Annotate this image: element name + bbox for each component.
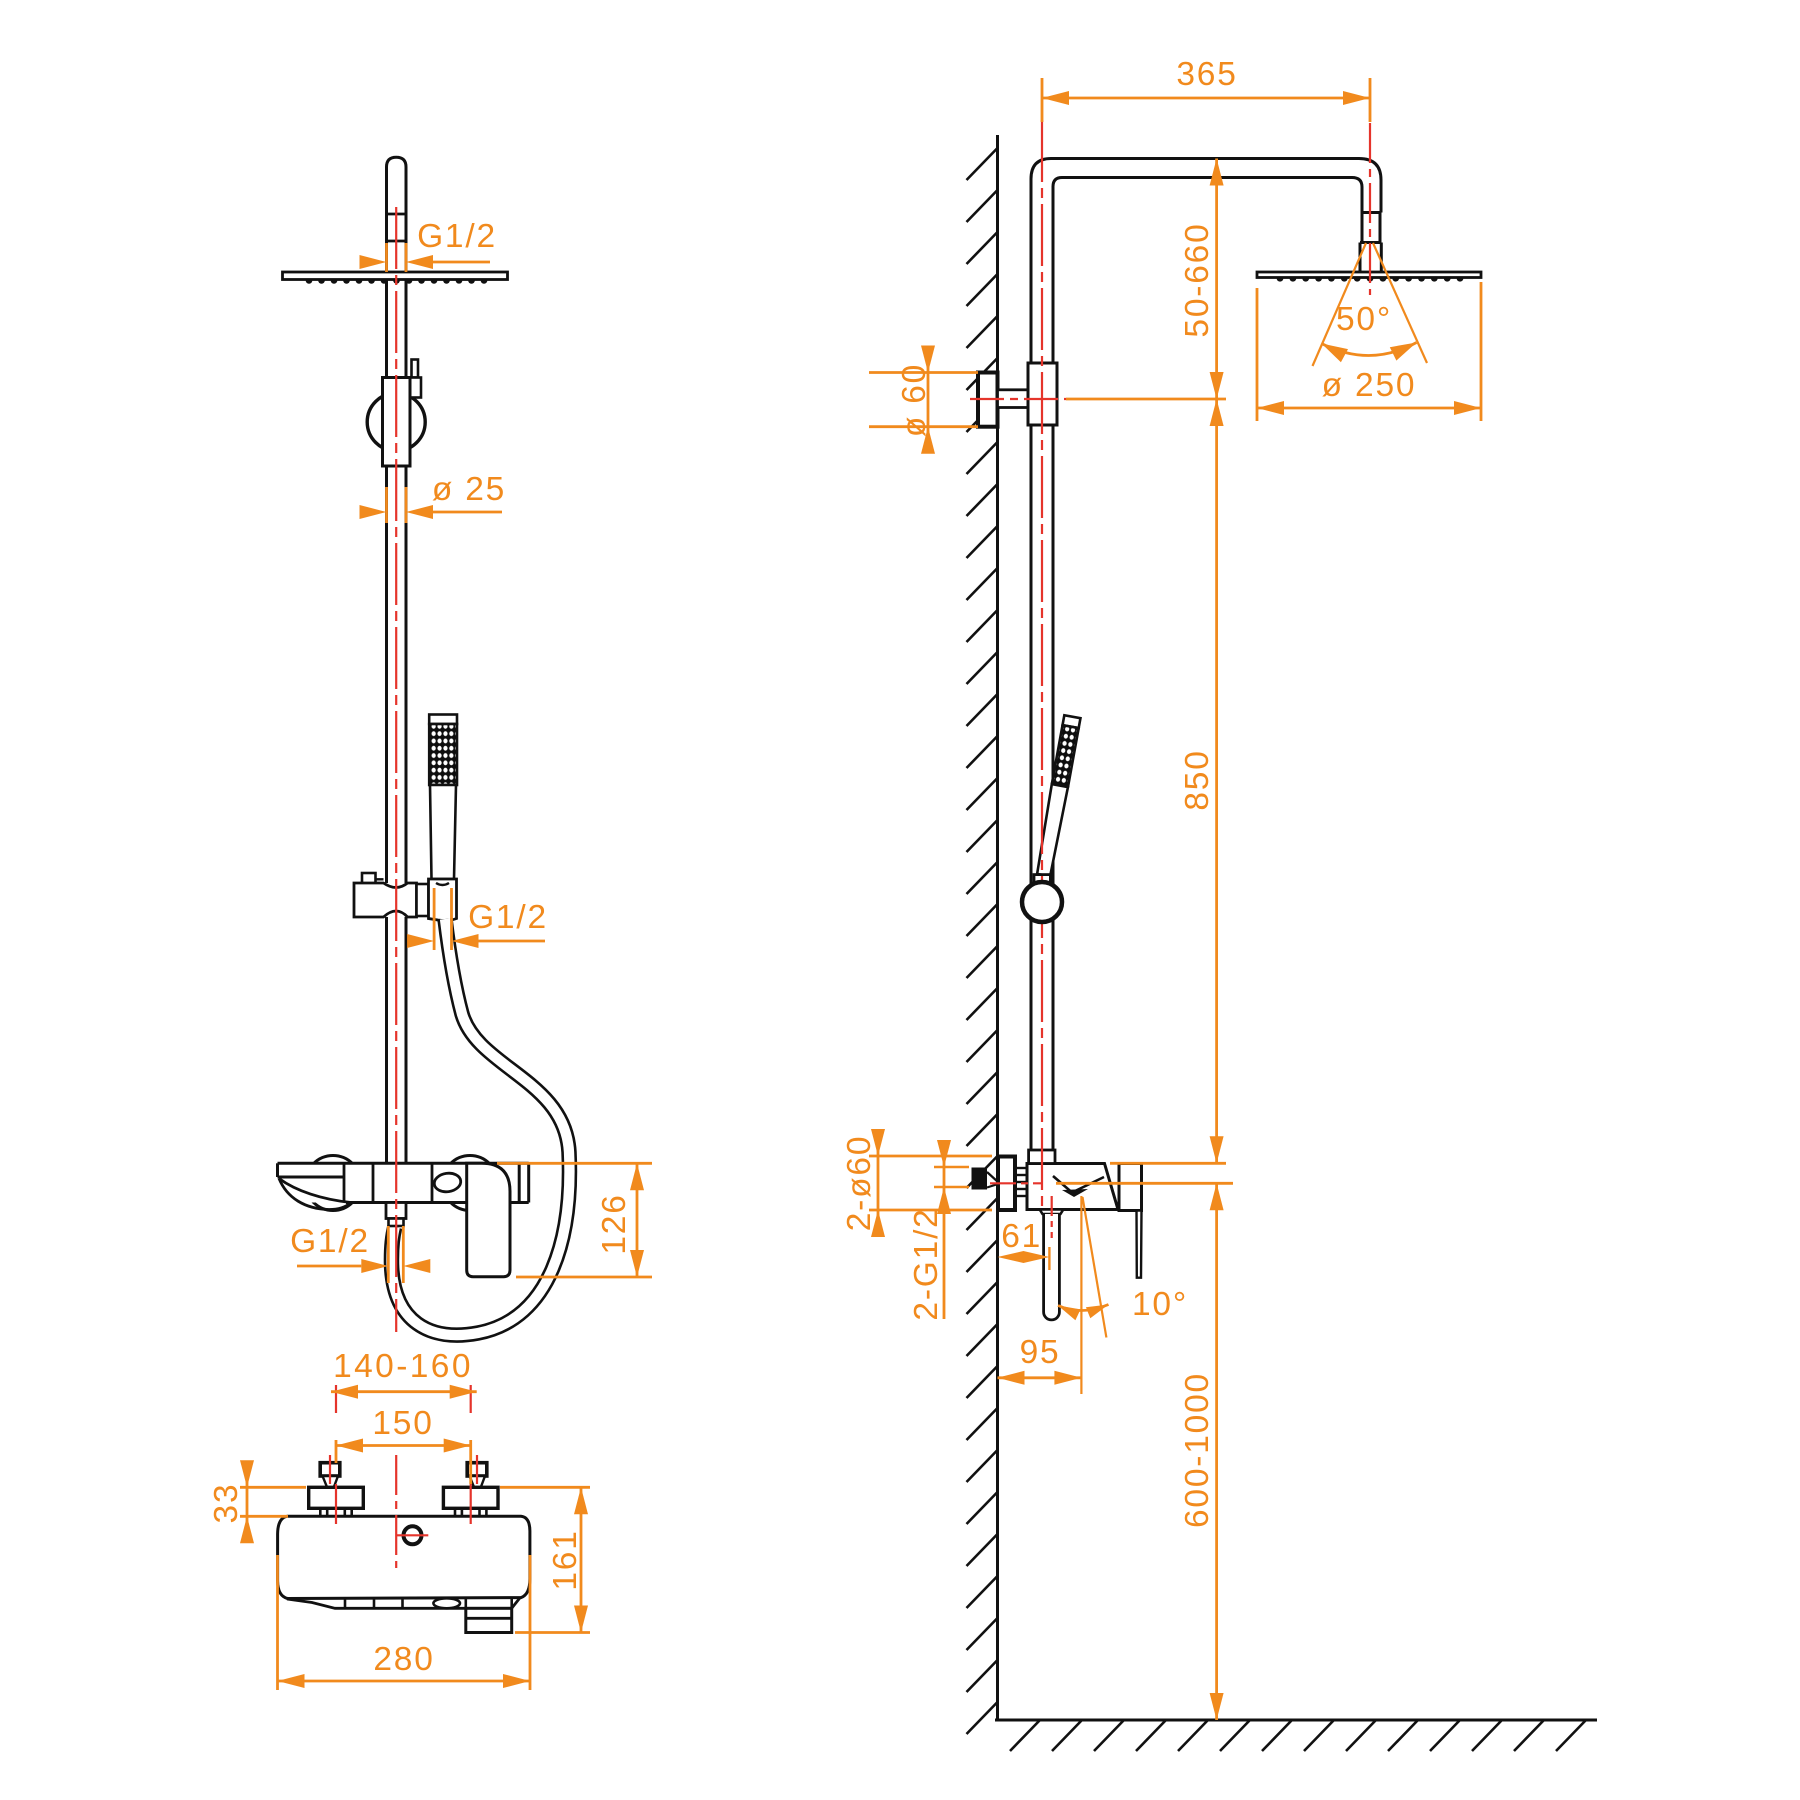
svg-text:600-1000: 600-1000 — [1179, 1372, 1216, 1528]
svg-text:365: 365 — [1176, 56, 1237, 93]
svg-text:G1/2: G1/2 — [468, 899, 548, 936]
svg-text:2-G1/2: 2-G1/2 — [908, 1207, 945, 1320]
svg-text:280: 280 — [373, 1641, 434, 1678]
svg-text:50-660: 50-660 — [1179, 222, 1216, 337]
svg-text:161: 161 — [547, 1529, 584, 1590]
svg-text:150: 150 — [372, 1405, 433, 1442]
svg-text:126: 126 — [596, 1193, 633, 1254]
svg-text:50°: 50° — [1336, 301, 1392, 338]
svg-text:2-ø60: 2-ø60 — [841, 1135, 878, 1232]
svg-text:G1/2: G1/2 — [417, 218, 497, 255]
svg-text:G1/2: G1/2 — [290, 1223, 370, 1260]
svg-text:ø 250: ø 250 — [1322, 367, 1417, 404]
svg-text:ø 60: ø 60 — [896, 363, 933, 437]
svg-text:10°: 10° — [1132, 1286, 1188, 1323]
svg-text:ø 25: ø 25 — [432, 471, 506, 508]
svg-text:140-160: 140-160 — [333, 1348, 473, 1385]
svg-text:850: 850 — [1179, 749, 1216, 810]
svg-text:33: 33 — [208, 1483, 245, 1524]
svg-text:95: 95 — [1020, 1334, 1061, 1371]
svg-text:61: 61 — [1001, 1218, 1042, 1255]
